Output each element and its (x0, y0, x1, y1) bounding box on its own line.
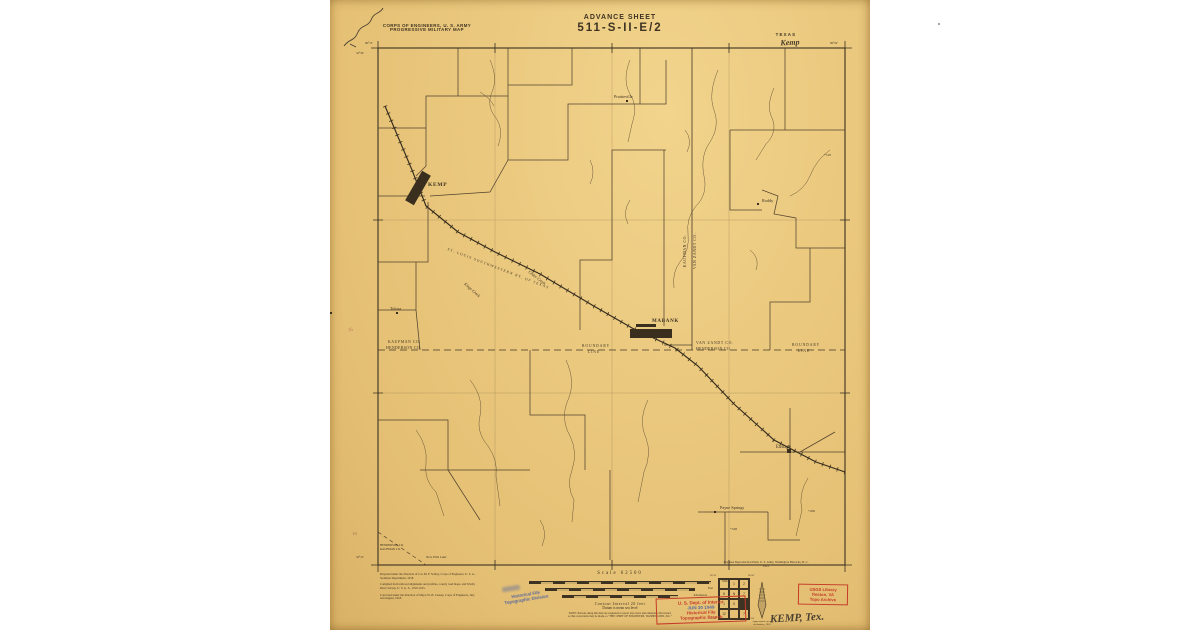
scale-bar-miles: Miles (515, 581, 725, 584)
quad-name-handwritten: Kemp (768, 38, 812, 48)
usgs-stamp-line3: Topo Archive (800, 597, 846, 603)
boundary-layer (378, 48, 845, 565)
town-label-mabank: MABANK (652, 319, 679, 324)
map-border (378, 48, 845, 565)
state-label: TEXAS (758, 33, 814, 37)
town-label-kemp: KEMP (428, 183, 447, 189)
pencil-mark-2: 16 (352, 532, 357, 537)
reproduction-credit-year: 1921 (718, 565, 814, 569)
town-label-tolosa: Tolosa (390, 307, 401, 311)
index-corner-tr: 96°00' (748, 575, 754, 578)
boundary-word-left2: LINE (588, 351, 600, 355)
agency-line2: PROGRESSIVE MILITARY MAP (368, 28, 486, 32)
dust-speck (938, 23, 940, 25)
elevation-mark-3: +528 (730, 528, 737, 531)
town-label-eustace: Eustace (776, 446, 791, 451)
boundary-word-left1: BOUNDARY (582, 345, 610, 349)
county-vertical-west: KAUFMAN CO. (684, 221, 688, 281)
scale-unit-feet: Feet (708, 587, 713, 590)
credit-paragraph-2: Compiled from railroad alignments and pr… (380, 583, 476, 591)
roads-layer (378, 48, 845, 565)
boundary-center-lower: HENDERSON CO. (696, 348, 731, 352)
graticule-left-bottom: 32°15' (356, 556, 364, 559)
railroad-layer (385, 106, 845, 472)
advance-sheet-title: ADVANCE SHEET (525, 14, 715, 21)
credit-paragraph-3: Corrected under the direction of Major W… (380, 594, 476, 602)
map-sheet: CORPS OF ENGINEERS, U. S. ARMY PROGRESSI… (330, 0, 870, 630)
town-label-prairieville: Prairieville (614, 95, 633, 99)
corner-county-line2: KAUFMAN CO. (380, 547, 404, 551)
lake-label: New Ellis Lake (426, 556, 447, 559)
boundary-word-right2: LINE (798, 350, 810, 354)
boundary-word-right1: BOUNDARY (792, 344, 820, 348)
pencil-mark-1: 16 (348, 328, 354, 334)
town-label-payne-springs: Payne Springs (720, 506, 744, 510)
graticule-left-top: 32°30' (356, 52, 364, 55)
boundary-left-upper: KAUFMAN CO. (388, 341, 421, 345)
index-corner-tl: 96°30' (710, 575, 716, 578)
interior-dept-stamp: U. S. Dept. of Interior JUN 30 1949 Hist… (656, 595, 747, 624)
index-cell: 1 (729, 579, 739, 589)
elevation-mark-2: +436 (808, 510, 815, 513)
town-label-roddy: Roddy (762, 199, 773, 203)
page: CORPS OF ENGINEERS, U. S. ARMY PROGRESSI… (0, 0, 1200, 630)
boundary-center-upper: VAN ZANDT CO. (696, 342, 734, 346)
declination-diagram (754, 581, 770, 621)
agency-block: CORPS OF ENGINEERS, U. S. ARMY PROGRESSI… (368, 24, 486, 33)
graticule-top-right: 96°00' (830, 42, 838, 45)
reproduction-credit: Engineer Reproduction Plant, U. S. Army,… (718, 561, 814, 569)
boundary-left-lower: HENDERSON CO. (386, 347, 421, 351)
graticule-layer (378, 48, 845, 565)
corner-county-block: HENDERSON CO. KAUFMAN CO. (380, 543, 404, 551)
scale-title: Scale 62500 (515, 572, 725, 577)
map-canvas (330, 0, 870, 630)
graticule-top-left: 96°15' (365, 42, 373, 45)
border-ticks (371, 41, 852, 572)
index-cell: 2 (739, 579, 749, 589)
index-cell (719, 579, 729, 589)
credit-paragraph-1: Prepared under the direction of Col. M. … (380, 573, 476, 581)
usgs-library-stamp: USGS Library Reston, VA Topo Archive (798, 584, 848, 606)
county-vertical-east: VAN ZANDT CO. (694, 221, 698, 281)
elevation-mark-1: +518 (824, 154, 831, 157)
streams-layer (416, 60, 830, 546)
sheet-number: 511-S-II-E/2 (525, 23, 715, 35)
credits-block: Prepared under the direction of Col. M. … (380, 573, 476, 604)
